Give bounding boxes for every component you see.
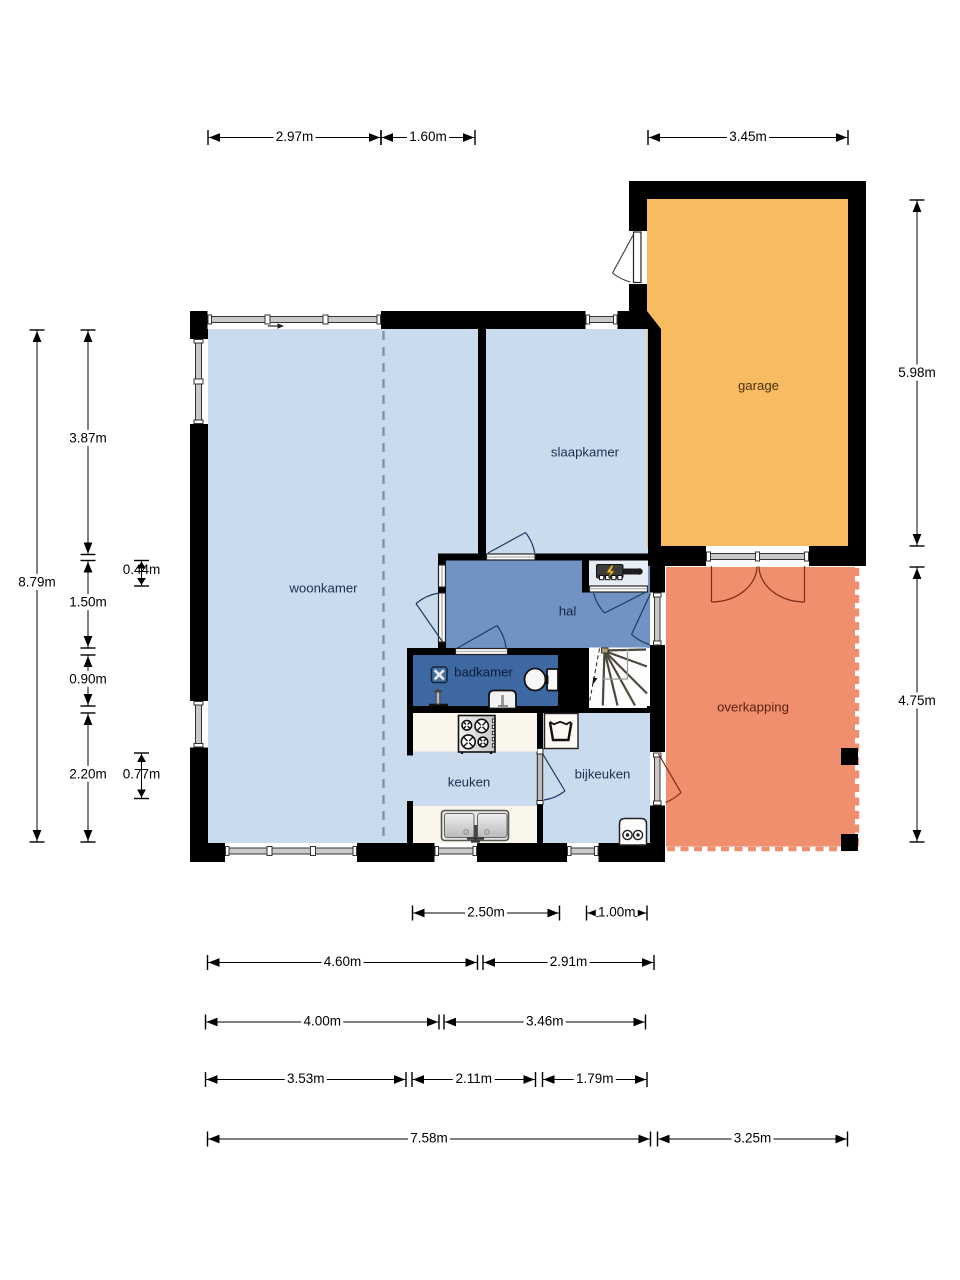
- svg-text:4.75m: 4.75m: [898, 693, 936, 708]
- svg-text:7.58m: 7.58m: [410, 1131, 448, 1146]
- svg-text:bijkeuken: bijkeuken: [575, 767, 631, 782]
- svg-text:2.20m: 2.20m: [69, 767, 107, 782]
- svg-text:garage: garage: [738, 378, 779, 393]
- svg-text:1.50m: 1.50m: [69, 595, 107, 610]
- svg-text:2.50m: 2.50m: [467, 905, 505, 920]
- svg-text:0.77m: 0.77m: [123, 767, 161, 782]
- svg-text:0.90m: 0.90m: [69, 672, 107, 687]
- svg-text:3.25m: 3.25m: [734, 1131, 772, 1146]
- svg-text:2.97m: 2.97m: [276, 129, 314, 144]
- svg-text:3.45m: 3.45m: [729, 129, 767, 144]
- svg-text:2.11m: 2.11m: [455, 1071, 492, 1086]
- svg-text:badkamer: badkamer: [454, 665, 513, 680]
- svg-text:3.87m: 3.87m: [69, 431, 107, 446]
- svg-text:1.60m: 1.60m: [409, 129, 447, 144]
- svg-text:4.60m: 4.60m: [324, 954, 362, 969]
- svg-text:hal: hal: [559, 604, 577, 619]
- svg-text:1.79m: 1.79m: [576, 1071, 614, 1086]
- svg-text:5.98m: 5.98m: [898, 365, 936, 380]
- svg-text:8.79m: 8.79m: [18, 575, 56, 590]
- svg-text:4.00m: 4.00m: [303, 1014, 341, 1029]
- svg-text:woonkamer: woonkamer: [288, 581, 358, 596]
- svg-text:2.91m: 2.91m: [550, 954, 588, 969]
- svg-text:1.00m: 1.00m: [598, 905, 636, 920]
- svg-text:3.46m: 3.46m: [526, 1014, 564, 1029]
- svg-text:0.44m: 0.44m: [123, 562, 161, 577]
- svg-text:slaapkamer: slaapkamer: [551, 445, 620, 460]
- svg-text:3.53m: 3.53m: [287, 1071, 325, 1086]
- svg-text:overkapping: overkapping: [717, 700, 789, 715]
- svg-text:keuken: keuken: [448, 775, 491, 790]
